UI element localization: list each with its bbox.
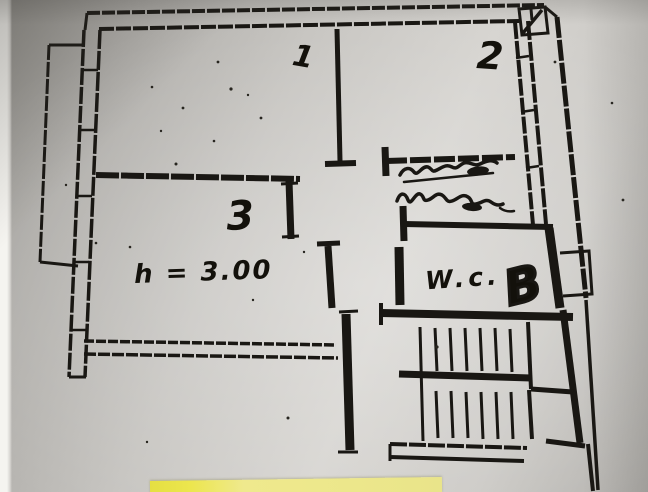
marker-b-annotation: B: [498, 254, 547, 317]
staircase: [399, 322, 573, 441]
interior-walls: [84, 29, 358, 452]
ceiling-height-note: h = 3.00: [134, 255, 274, 290]
wc-label: W.c.: [424, 261, 501, 295]
room-1-label: 1: [290, 38, 317, 76]
right-walls: [515, 17, 598, 490]
handwritten-scribble: [397, 161, 514, 212]
room-3-label: 3: [225, 193, 255, 240]
room-2-label: 2: [475, 33, 504, 79]
door-symbol-icon: [519, 7, 557, 35]
floor-plan-photo: 1 2 3 h = 3.00 W.c. B: [0, 0, 648, 492]
floor-plan-drawing: 1 2 3 h = 3.00 W.c. B: [0, 0, 648, 492]
